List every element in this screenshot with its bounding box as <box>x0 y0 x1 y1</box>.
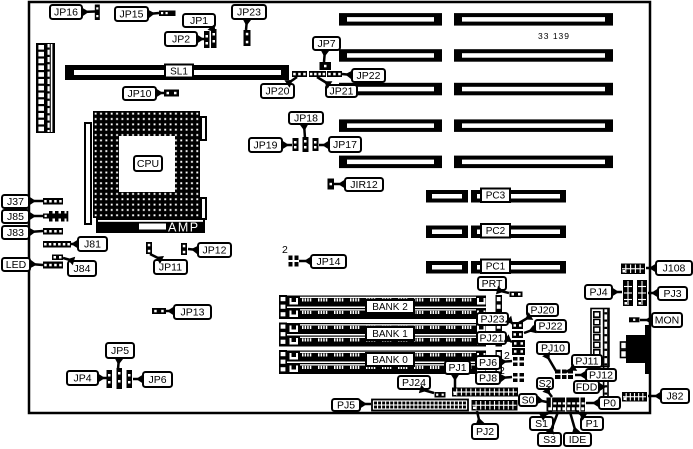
svg-text:PC2: PC2 <box>486 226 506 237</box>
svg-text:S0: S0 <box>522 395 535 407</box>
svg-text:PJ5: PJ5 <box>337 400 355 412</box>
svg-text:S1: S1 <box>535 418 548 430</box>
svg-text:J84: J84 <box>74 263 91 275</box>
svg-text:PJ2: PJ2 <box>476 426 494 438</box>
svg-text:PJ8: PJ8 <box>479 373 497 385</box>
svg-text:LED: LED <box>6 259 27 271</box>
svg-text:J108: J108 <box>663 263 686 275</box>
svg-text:JP19: JP19 <box>254 140 278 152</box>
svg-text:PJ3: PJ3 <box>663 288 681 300</box>
svg-text:JP23: JP23 <box>237 7 261 19</box>
svg-text:SL1: SL1 <box>170 66 188 77</box>
svg-text:JP18: JP18 <box>294 113 318 125</box>
svg-text:JP2: JP2 <box>172 34 190 46</box>
svg-text:JP11: JP11 <box>159 262 182 274</box>
svg-text:JP22: JP22 <box>357 70 381 82</box>
svg-text:J83: J83 <box>7 227 24 239</box>
svg-text:PJ21: PJ21 <box>480 333 504 345</box>
svg-text:BANK 0: BANK 0 <box>372 355 408 366</box>
svg-text:JP21: JP21 <box>330 86 354 98</box>
svg-text:JP14: JP14 <box>317 256 341 268</box>
svg-text:JIR12: JIR12 <box>350 179 378 191</box>
svg-text:PJ20: PJ20 <box>531 305 555 317</box>
svg-text:JP17: JP17 <box>333 139 357 151</box>
svg-text:P1: P1 <box>586 418 599 430</box>
svg-text:S3: S3 <box>543 434 556 446</box>
svg-text:PJ1: PJ1 <box>448 362 466 374</box>
svg-text:JP5: JP5 <box>111 345 129 357</box>
svg-text:IDE: IDE <box>569 434 587 446</box>
svg-text:JP13: JP13 <box>181 307 205 319</box>
svg-text:AMP: AMP <box>168 221 200 235</box>
svg-text:PC3: PC3 <box>486 191 506 202</box>
svg-text:PJ23: PJ23 <box>481 314 505 326</box>
svg-text:PC1: PC1 <box>486 262 506 273</box>
svg-text:JP16: JP16 <box>54 7 78 19</box>
svg-text:J85: J85 <box>7 211 24 223</box>
svg-text:MON: MON <box>655 315 680 327</box>
svg-text:JP4: JP4 <box>73 373 91 385</box>
svg-text:J82: J82 <box>667 391 684 403</box>
svg-text:JP15: JP15 <box>120 9 144 21</box>
svg-text:JP12: JP12 <box>203 245 227 257</box>
svg-text:FDD: FDD <box>576 382 598 394</box>
svg-text:2: 2 <box>282 244 288 256</box>
svg-text:PJ11: PJ11 <box>575 356 598 368</box>
svg-text:CPU: CPU <box>137 158 159 170</box>
svg-text:JP20: JP20 <box>266 86 290 98</box>
svg-text:PJ4: PJ4 <box>589 287 607 299</box>
svg-text:JP6: JP6 <box>148 374 166 386</box>
svg-text:P0: P0 <box>603 398 616 410</box>
svg-text:33 139: 33 139 <box>538 31 570 41</box>
svg-text:JP1: JP1 <box>190 15 208 27</box>
svg-text:J37: J37 <box>7 196 24 208</box>
svg-text:JP7: JP7 <box>317 38 335 50</box>
svg-text:PJ6: PJ6 <box>479 357 497 369</box>
svg-text:PJ22: PJ22 <box>539 321 563 333</box>
svg-text:BANK 1: BANK 1 <box>372 329 408 340</box>
svg-text:JP10: JP10 <box>128 88 152 100</box>
svg-text:BANK 2: BANK 2 <box>372 302 408 313</box>
svg-text:PJ10: PJ10 <box>541 343 565 355</box>
svg-text:J81: J81 <box>84 239 101 251</box>
svg-text:PJ12: PJ12 <box>589 370 613 382</box>
